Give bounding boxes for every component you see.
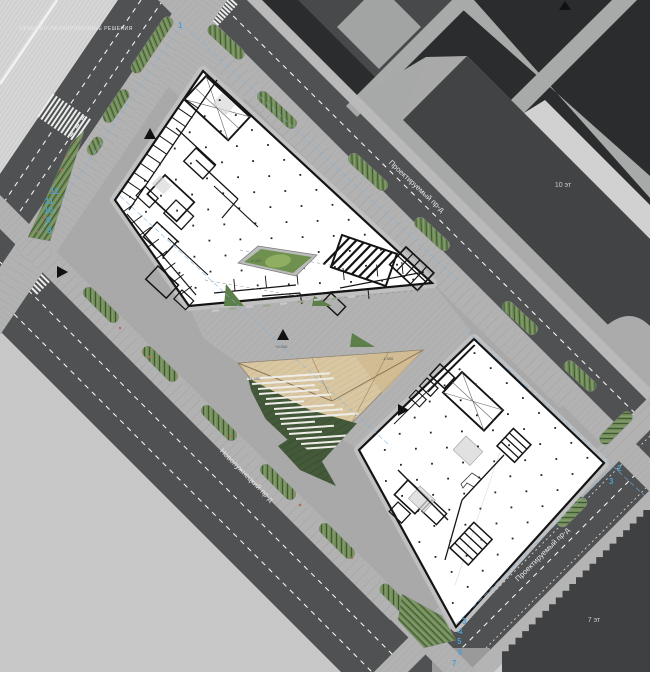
svg-text:2: 2 <box>617 464 622 473</box>
svg-text:7 эт: 7 эт <box>588 617 601 624</box>
svg-text:10: 10 <box>44 206 53 215</box>
svg-text:+4.650: +4.650 <box>248 376 261 381</box>
svg-text:ОБЪЕМНО-ПЛАНИРОВОЧНЫЕ РЕШЕНИЯ: ОБЪЕМНО-ПЛАНИРОВОЧНЫЕ РЕШЕНИЯ <box>19 26 133 32</box>
svg-text:+0.000: +0.000 <box>275 344 288 349</box>
svg-text:-5.400: -5.400 <box>250 258 262 263</box>
svg-text:7: 7 <box>452 659 457 668</box>
svg-text:6: 6 <box>458 648 463 657</box>
svg-text:9: 9 <box>46 216 51 225</box>
svg-text:10 эт: 10 эт <box>555 182 572 189</box>
svg-text:4: 4 <box>458 627 463 636</box>
svg-text:3: 3 <box>609 477 614 486</box>
svg-text:8: 8 <box>47 226 52 235</box>
svg-text:1: 1 <box>178 21 183 30</box>
svg-text:12: 12 <box>50 187 59 196</box>
svg-text:5: 5 <box>457 637 462 646</box>
svg-text:3: 3 <box>462 617 467 626</box>
svg-text:-1.500: -1.500 <box>382 356 394 361</box>
svg-text:11: 11 <box>45 197 54 206</box>
